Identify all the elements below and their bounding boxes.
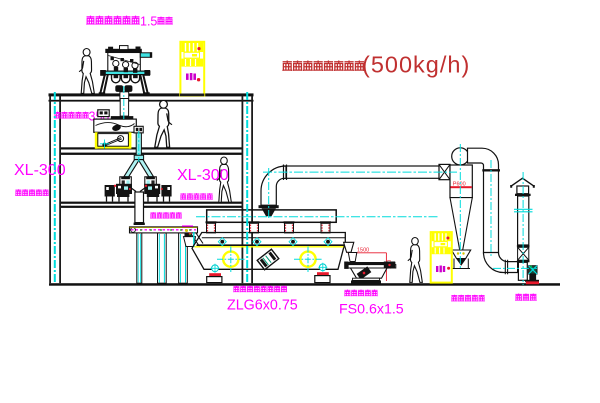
svg-text:(500kg/h): (500kg/h)	[362, 52, 470, 78]
svg-text:P600: P600	[453, 182, 466, 188]
svg-text:XL-300: XL-300	[14, 162, 66, 179]
svg-text:FS0.6x1.5: FS0.6x1.5	[339, 302, 404, 318]
svg-text:ZLG6x0.75: ZLG6x0.75	[227, 298, 298, 314]
svg-text:1.5: 1.5	[140, 15, 157, 29]
svg-text:1500: 1500	[357, 248, 369, 254]
svg-text:XL-300: XL-300	[177, 167, 229, 184]
